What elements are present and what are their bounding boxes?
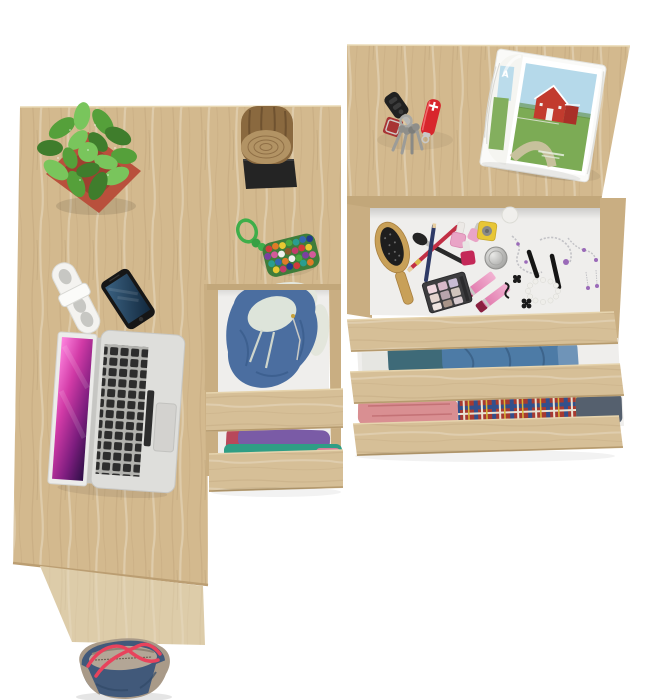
crystal-bead [516,242,520,246]
desk-top-edge-highlight [20,106,341,107]
cabinet-shadow [211,487,341,497]
crystal-bead [524,260,528,264]
cream-jar [502,207,518,223]
dresser-top-edge-highlight [347,45,630,46]
laptop-keyboard [96,344,149,477]
laptop [47,327,185,501]
log-stool [241,106,297,189]
dresser-drawer-1-open [369,207,600,318]
silver-jar [485,247,507,269]
photo-barn-shed [563,105,579,125]
magazine: A [478,48,607,185]
cabinet-drawer-1-open [218,276,331,394]
crystal-bead [582,248,586,252]
dresser-drawer-1-shade [370,208,600,219]
photo-barn-window [539,103,542,106]
magazine-right-page [506,57,602,176]
nail-polish-yellow [477,221,497,241]
crystal-bead [594,258,598,262]
cabinet-right-rail [329,284,341,470]
pendant [563,259,569,265]
cabinet-drawer-2-front-grain [209,450,343,492]
dresser-left-rail [347,204,372,318]
scene-photo: A [0,0,672,700]
cabinet-front-edge-band [207,284,341,290]
tote-bag [76,638,172,700]
log-stool-base [243,160,297,189]
dresser-shadow [355,450,615,462]
photo-barn-window [558,106,561,109]
cabinet-drawer-1-front-grain [206,389,343,432]
cabinet-left-rail [204,284,220,476]
hoodie-zipper-pull [291,314,295,318]
laptop-trackpad [153,403,176,452]
dresser-front-edge-band [347,196,602,208]
